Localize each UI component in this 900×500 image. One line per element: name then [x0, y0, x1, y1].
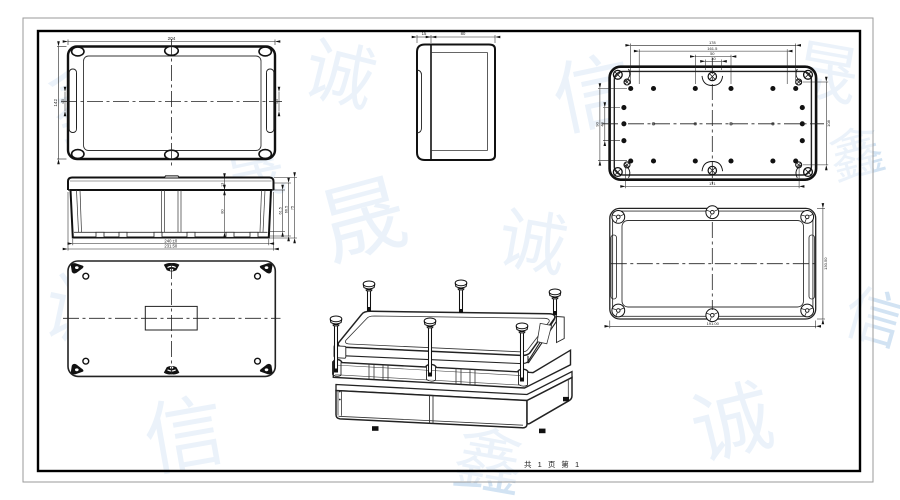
- svg-text:40: 40: [600, 121, 605, 126]
- svg-text:204: 204: [168, 36, 176, 41]
- svg-text:30: 30: [711, 56, 716, 61]
- svg-text:4.5: 4.5: [61, 99, 65, 104]
- svg-text:共 1 页 第 1: 共 1 页 第 1: [524, 459, 581, 469]
- svg-text:161.5: 161.5: [707, 46, 718, 51]
- svg-text:80: 80: [220, 209, 224, 213]
- svg-text:80: 80: [461, 31, 466, 36]
- svg-text:61.5: 61.5: [278, 207, 282, 214]
- svg-text:130.50: 130.50: [823, 257, 828, 270]
- svg-text:240 ±0: 240 ±0: [164, 238, 177, 243]
- svg-text:171: 171: [709, 181, 716, 186]
- svg-text:231.50: 231.50: [164, 244, 177, 249]
- svg-text:13: 13: [220, 183, 224, 187]
- svg-text:75: 75: [290, 206, 294, 210]
- svg-text:15: 15: [422, 31, 427, 36]
- svg-text:66.5: 66.5: [284, 206, 288, 213]
- svg-text:4.5: 4.5: [275, 99, 279, 104]
- svg-text:142: 142: [53, 99, 58, 107]
- svg-text:191.00: 191.00: [707, 321, 720, 326]
- svg-text:178: 178: [709, 40, 716, 45]
- svg-text:108: 108: [826, 119, 831, 126]
